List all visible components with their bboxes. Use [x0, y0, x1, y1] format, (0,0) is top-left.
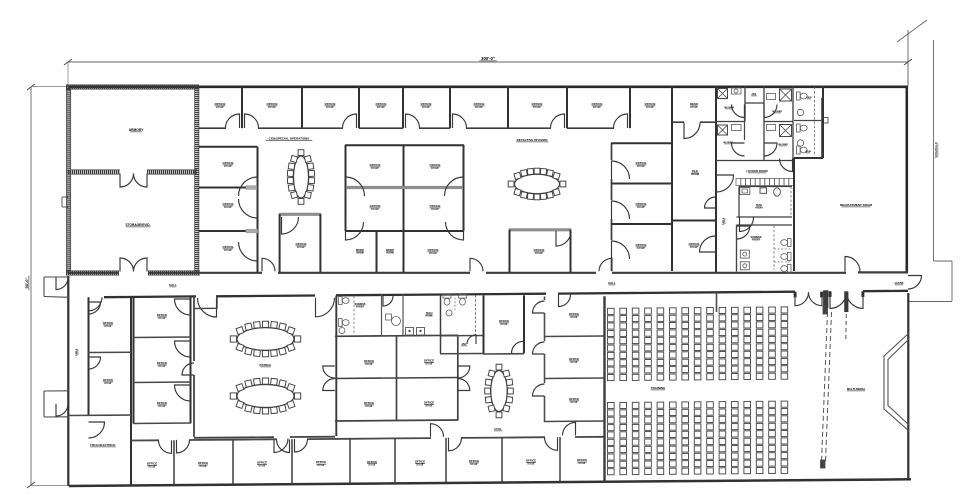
svg-text:OFFICE10'x10': OFFICE10'x10'	[367, 460, 377, 467]
svg-text:OFFICE10'x10': OFFICE10'x10'	[103, 378, 113, 385]
svg-text:DETECTIVE DIVISION: DETECTIVE DIVISION	[517, 138, 548, 142]
svg-text:OFFICE10'x10': OFFICE10'x10'	[534, 248, 545, 255]
svg-text:OFFICE10'x10': OFFICE10'x10'	[364, 401, 374, 408]
svg-text:OFFICE10'x10': OFFICE10'x10'	[376, 102, 387, 109]
svg-text:HALL: HALL	[74, 348, 78, 355]
svg-text:OFFICE10'x10': OFFICE10'x10'	[223, 245, 234, 252]
svg-text:OFFICE10'x10': OFFICE10'x10'	[223, 161, 234, 168]
svg-text:LOCKER ROOM: LOCKER ROOM	[746, 169, 768, 173]
svg-text:OFFICE10'x10': OFFICE10'x10'	[569, 312, 579, 319]
svg-text:OFFICE10'x10': OFFICE10'x10'	[198, 461, 208, 468]
svg-text:50'-0": 50'-0"	[24, 277, 29, 288]
svg-text:OFFICE10'x10': OFFICE10'x10'	[215, 102, 226, 109]
svg-text:OFFICE10'x10': OFFICE10'x10'	[415, 459, 425, 466]
svg-text:OFFICE10'x10': OFFICE10'x10'	[577, 458, 587, 465]
svg-text:OFFICE10'x10': OFFICE10'x10'	[157, 313, 167, 320]
svg-text:OFFICE10'x10': OFFICE10'x10'	[325, 102, 336, 109]
svg-text:WORKROOM: WORKROOM	[386, 248, 394, 255]
svg-text:OFFICE10'x10': OFFICE10'x10'	[636, 202, 647, 209]
svg-text:JAN.: JAN.	[751, 93, 757, 96]
svg-text:OFFICE10'x10': OFFICE10'x10'	[223, 202, 234, 209]
svg-text:OFFICE10'x10': OFFICE10'x10'	[157, 401, 167, 408]
svg-text:OFFICE10'x10': OFFICE10'x10'	[430, 163, 441, 170]
svg-text:OFFICE10'x10': OFFICE10'x10'	[370, 163, 381, 170]
svg-text:WORKROOM: WORKROOM	[356, 248, 364, 255]
svg-text:OFFICE10'x10': OFFICE10'x10'	[689, 242, 700, 249]
svg-text:OFFICE10'x10': OFFICE10'x10'	[424, 359, 434, 366]
svg-text:OFFICE10'x10': OFFICE10'x10'	[430, 204, 441, 211]
svg-text:CIVIL: CIVIL	[494, 427, 501, 431]
svg-text:OFFICE10'x10': OFFICE10'x10'	[267, 102, 278, 109]
svg-text:DESK10'x10': DESK10'x10'	[690, 102, 699, 109]
svg-text:VESTIB: VESTIB	[895, 282, 904, 285]
svg-text:OFFICE10'x10': OFFICE10'x10'	[499, 319, 509, 326]
svg-text:OFFICE10'x10': OFFICE10'x10'	[316, 460, 326, 467]
svg-text:OFFICE10'x10': OFFICE10'x10'	[421, 102, 432, 109]
svg-text:OFFICE10'x10': OFFICE10'x10'	[103, 321, 113, 328]
svg-text:FISCAL/ELECTRICAL: FISCAL/ELECTRICAL	[90, 444, 116, 447]
svg-text:TRAINING: TRAINING	[651, 386, 666, 390]
svg-text:OFFICE10'x10': OFFICE10'x10'	[296, 242, 307, 249]
svg-text:OFFICE10'x10': OFFICE10'x10'	[526, 459, 536, 466]
svg-text:HALL: HALL	[169, 283, 177, 287]
svg-text:OFFICE10'x10': OFFICE10'x10'	[532, 102, 543, 109]
svg-text:STORAGE/EVID.: STORAGE/EVID.	[126, 223, 151, 227]
svg-text:OFFICE10'x10': OFFICE10'x10'	[636, 243, 647, 250]
svg-text:OFFICE10'x10': OFFICE10'x10'	[636, 161, 647, 168]
svg-text:OFFICE10'x10': OFFICE10'x10'	[428, 248, 439, 255]
svg-text:ARMORY: ARMORY	[129, 128, 144, 132]
svg-text:HALL: HALL	[721, 217, 725, 224]
svg-text:OFFICE10'x10': OFFICE10'x10'	[370, 204, 381, 211]
svg-text:OFFICE10'x10': OFFICE10'x10'	[424, 401, 434, 408]
svg-text:OFFICE10'x10': OFFICE10'x10'	[469, 459, 479, 466]
svg-text:FILEROOM: FILEROOM	[691, 169, 699, 176]
svg-text:HALL: HALL	[608, 281, 616, 285]
svg-text:OFFICE10'x10': OFFICE10'x10'	[592, 102, 603, 109]
svg-text:OFFICE10'x10': OFFICE10'x10'	[157, 361, 167, 368]
svg-text:CID&SPECIAL OPERATIONS: CID&SPECIAL OPERATIONS	[269, 137, 310, 141]
svg-text:OFFICE10'x10': OFFICE10'x10'	[474, 102, 485, 109]
svg-text:OFFICE10'x10': OFFICE10'x10'	[569, 357, 579, 364]
svg-text:MULTI-MEDIA: MULTI-MEDIA	[847, 387, 865, 391]
svg-text:PATROL: PATROL	[260, 363, 272, 367]
svg-text:JAIL: JAIL	[461, 342, 467, 346]
svg-text:SIDEWALK: SIDEWALK	[934, 141, 938, 158]
svg-text:OFFICE10'x10': OFFICE10'x10'	[147, 462, 157, 469]
svg-text:OFFICE10'x10': OFFICE10'x10'	[569, 397, 579, 404]
svg-text:RECRUITMENT ROOM: RECRUITMENT ROOM	[840, 203, 872, 207]
svg-text:OFFICE10'x10': OFFICE10'x10'	[645, 102, 656, 109]
svg-text:300'-0": 300'-0"	[481, 56, 495, 61]
svg-text:OFFICE10'x10': OFFICE10'x10'	[257, 461, 267, 468]
svg-text:OFFICE10'x10': OFFICE10'x10'	[364, 359, 374, 366]
